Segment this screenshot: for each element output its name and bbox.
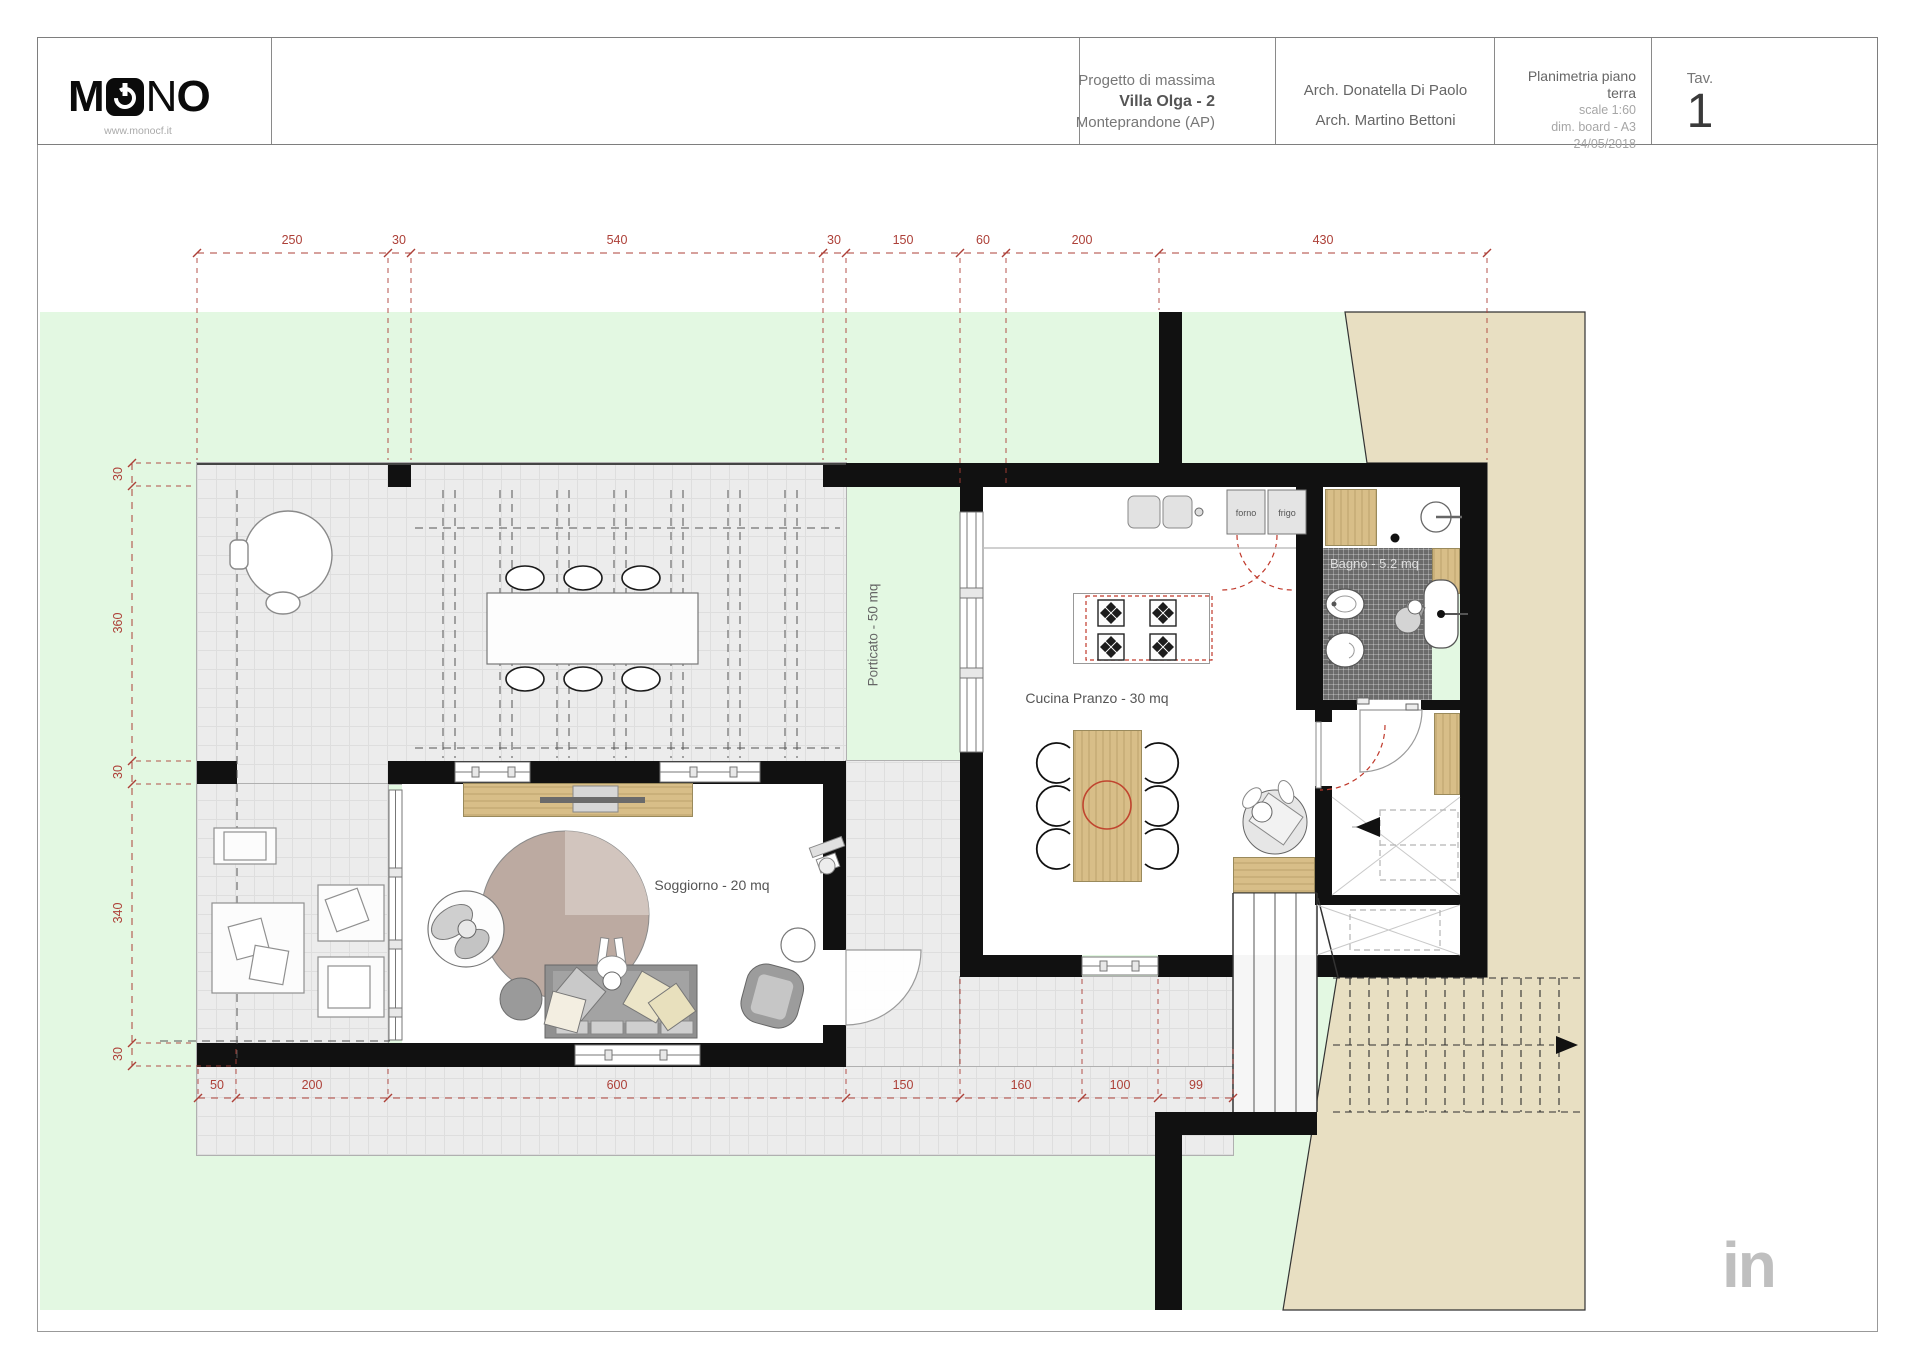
sink-bowl [1163,496,1192,528]
watermark: in [1722,1228,1775,1302]
bagno-door-handle [1357,698,1369,704]
hall-door-leaf [1316,722,1321,788]
dimension-label: 150 [893,233,914,247]
dimension-label: 340 [111,903,125,924]
plant [244,511,332,599]
kitchen-chairs [1037,743,1178,869]
plan-detail-layer [0,0,1920,1358]
dimension-label: 360 [111,613,125,634]
dining-table-outdoor [487,593,698,664]
landing-guides [1317,797,1460,955]
faucet [1195,508,1203,516]
dimension-label: 250 [282,233,303,247]
side-table [781,928,815,962]
person-in-bath [1395,600,1425,633]
window [575,1045,700,1065]
dimension-label: 30 [111,1047,125,1061]
oven-label: forno [1227,508,1265,518]
room-label-bagno: Bagno - 5.2 mq [1330,556,1419,571]
room-label-cucina: Cucina Pranzo - 30 mq [1025,690,1168,706]
dimension-label: 50 [210,1078,224,1092]
kitchen-door-swing [1222,535,1277,590]
terrace-furniture [212,828,384,1017]
dimension-label: 30 [827,233,841,247]
window [660,762,760,782]
kitchen-door-swing [1237,535,1292,590]
soggiorno-furniture [425,786,845,1038]
bagno-door-swing [1360,710,1422,772]
dimension-label: 540 [607,233,628,247]
dimension-label: 60 [976,233,990,247]
stair-direction-arrow-left [1356,817,1380,837]
dimension-label: 30 [111,765,125,779]
drain-dot [1391,534,1400,543]
stair-direction-arrow-right [1556,1036,1578,1054]
fridge-label: frigo [1268,508,1306,518]
kitchen-fixtures [983,490,1307,869]
plant-pot [230,540,248,569]
dimension-label: 200 [1072,233,1093,247]
room-label-soggiorno: Soggiorno - 20 mq [654,877,769,893]
tv [540,797,645,803]
reading-chair [736,960,808,1033]
bagno-door-handle [1406,704,1418,710]
dimension-label: 430 [1313,233,1334,247]
dimension-label: 200 [302,1078,323,1092]
dimension-label: 100 [1110,1078,1131,1092]
window [960,512,983,752]
external-stairs [1333,978,1580,1112]
sink-bowl [1128,496,1160,528]
bathroom-fixtures [1326,502,1468,667]
plant-pot [266,592,300,614]
window [455,762,530,782]
plan-sheet: M NO www.monocf.it Progetto di massima V… [0,0,1920,1358]
dimension-label: 150 [893,1078,914,1092]
dimension-label: 160 [1011,1078,1032,1092]
soggiorno-east-door-swing [846,950,921,1025]
porticato-furniture [230,511,698,691]
room-label-porticato: Porticato - 50 mq [866,584,881,687]
dimension-label: 30 [392,233,406,247]
dimension-label: 30 [111,467,125,481]
window [389,790,402,1040]
dimension-label: 99 [1189,1078,1203,1092]
window [1082,957,1158,975]
table-decor [1083,781,1131,829]
rug-highlight [565,831,649,915]
ottoman [500,978,542,1020]
dimension-label: 600 [607,1078,628,1092]
person-on-chair [1239,778,1307,854]
hob-burners [1098,600,1176,660]
stair-cut-line [1318,898,1338,977]
person-head [458,920,476,938]
desk-icon [809,836,844,874]
